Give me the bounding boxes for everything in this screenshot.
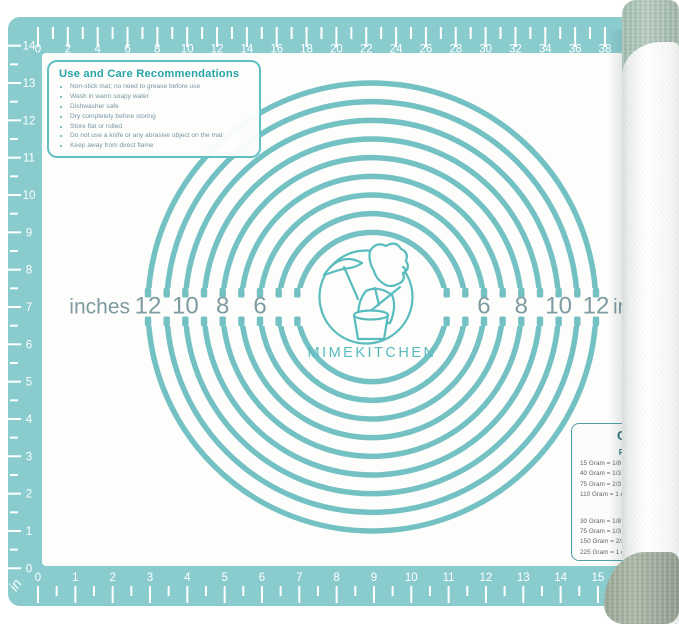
- product-photo: 02468101214161820222426283032343638 1413…: [0, 0, 679, 624]
- care-item: Keep away from direct flame: [70, 142, 251, 149]
- care-item: Non-stick mat; no need to grease before …: [70, 83, 251, 90]
- care-box: Use and Care Recommendations Non-stick m…: [47, 60, 261, 158]
- care-list: Non-stick mat; no need to grease before …: [59, 83, 251, 150]
- care-item: Wash in warm soapy water: [70, 93, 251, 100]
- care-title: Use and Care Recommendations: [59, 68, 251, 80]
- roll-body: [622, 42, 679, 624]
- care-item: Do not use a knife or any abrasive objec…: [70, 132, 251, 139]
- roll-shadow: [608, 30, 622, 574]
- care-item: Store flat or rolled: [70, 123, 251, 130]
- care-item: Dishwasher safe: [70, 103, 251, 110]
- rolled-mat-section: [598, 0, 679, 624]
- care-item: Dry completely before storing: [70, 113, 251, 120]
